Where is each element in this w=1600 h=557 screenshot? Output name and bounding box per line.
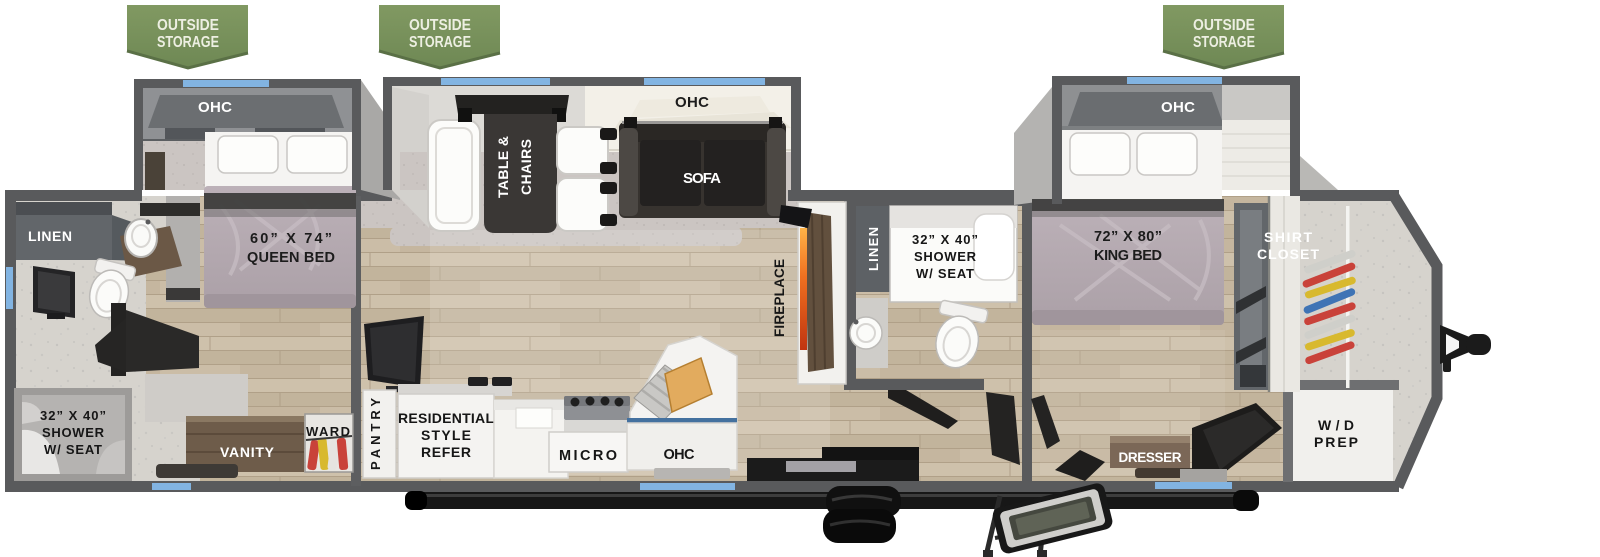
svg-text:OUTSIDE: OUTSIDE (157, 17, 219, 34)
svg-text:FIREPLACE: FIREPLACE (772, 259, 787, 337)
svg-text:OHC: OHC (664, 447, 696, 463)
svg-text:QUEEN BED: QUEEN BED (247, 250, 335, 266)
svg-text:REFER: REFER (421, 444, 471, 460)
svg-text:W/ SEAT: W/ SEAT (44, 442, 102, 457)
svg-text:OHC: OHC (198, 99, 232, 116)
svg-text:OHC: OHC (675, 94, 709, 111)
svg-text:KING BED: KING BED (1094, 248, 1162, 264)
svg-text:SHOWER: SHOWER (42, 425, 105, 440)
svg-text:VANITY: VANITY (220, 444, 275, 460)
svg-text:LINEN: LINEN (28, 228, 72, 244)
svg-text:MICRO: MICRO (559, 448, 617, 464)
svg-text:STORAGE: STORAGE (409, 34, 471, 51)
svg-text:LINEN: LINEN (866, 227, 881, 271)
svg-text:STORAGE: STORAGE (157, 34, 219, 51)
svg-text:32” X 40”: 32” X 40” (40, 408, 106, 423)
svg-text:CLOSET: CLOSET (1257, 246, 1319, 262)
svg-text:OUTSIDE: OUTSIDE (1193, 17, 1255, 34)
svg-text:OUTSIDE: OUTSIDE (409, 17, 471, 34)
svg-text:WARD: WARD (306, 424, 350, 439)
svg-text:SHIRT: SHIRT (1264, 229, 1312, 245)
svg-text:32” X 40”: 32” X 40” (912, 232, 978, 247)
svg-text:72” X 80”: 72” X 80” (1094, 229, 1162, 245)
svg-text:60” X 74”: 60” X 74” (250, 231, 332, 247)
svg-text:STYLE: STYLE (421, 427, 471, 443)
svg-text:OHC: OHC (1161, 99, 1195, 116)
svg-text:SHOWER: SHOWER (914, 249, 977, 264)
svg-text:W/ SEAT: W/ SEAT (916, 266, 974, 281)
svg-text:DRESSER: DRESSER (1119, 450, 1182, 465)
svg-text:RESIDENTIAL: RESIDENTIAL (398, 410, 494, 426)
svg-text:CHAIRS: CHAIRS (518, 139, 534, 195)
svg-text:STORAGE: STORAGE (1193, 34, 1255, 51)
svg-text:TABLE &: TABLE & (495, 136, 511, 198)
svg-text:W/D: W/D (1318, 417, 1354, 433)
svg-text:SOFA: SOFA (683, 170, 721, 187)
